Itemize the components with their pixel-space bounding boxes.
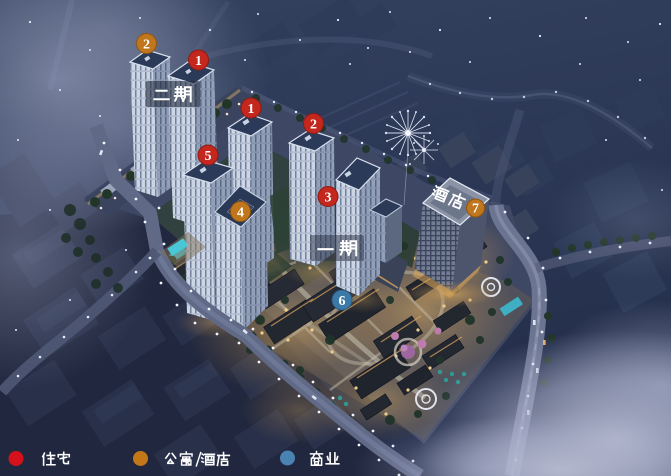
svg-text:2: 2 <box>143 38 150 53</box>
svg-text:6: 6 <box>339 294 346 309</box>
svg-text:4: 4 <box>237 206 244 221</box>
svg-text:2: 2 <box>310 118 317 133</box>
svg-text:1: 1 <box>195 54 202 69</box>
svg-text:1: 1 <box>248 102 255 117</box>
svg-text:3: 3 <box>325 191 332 206</box>
svg-text:7: 7 <box>472 202 479 217</box>
svg-text:5: 5 <box>205 149 212 164</box>
